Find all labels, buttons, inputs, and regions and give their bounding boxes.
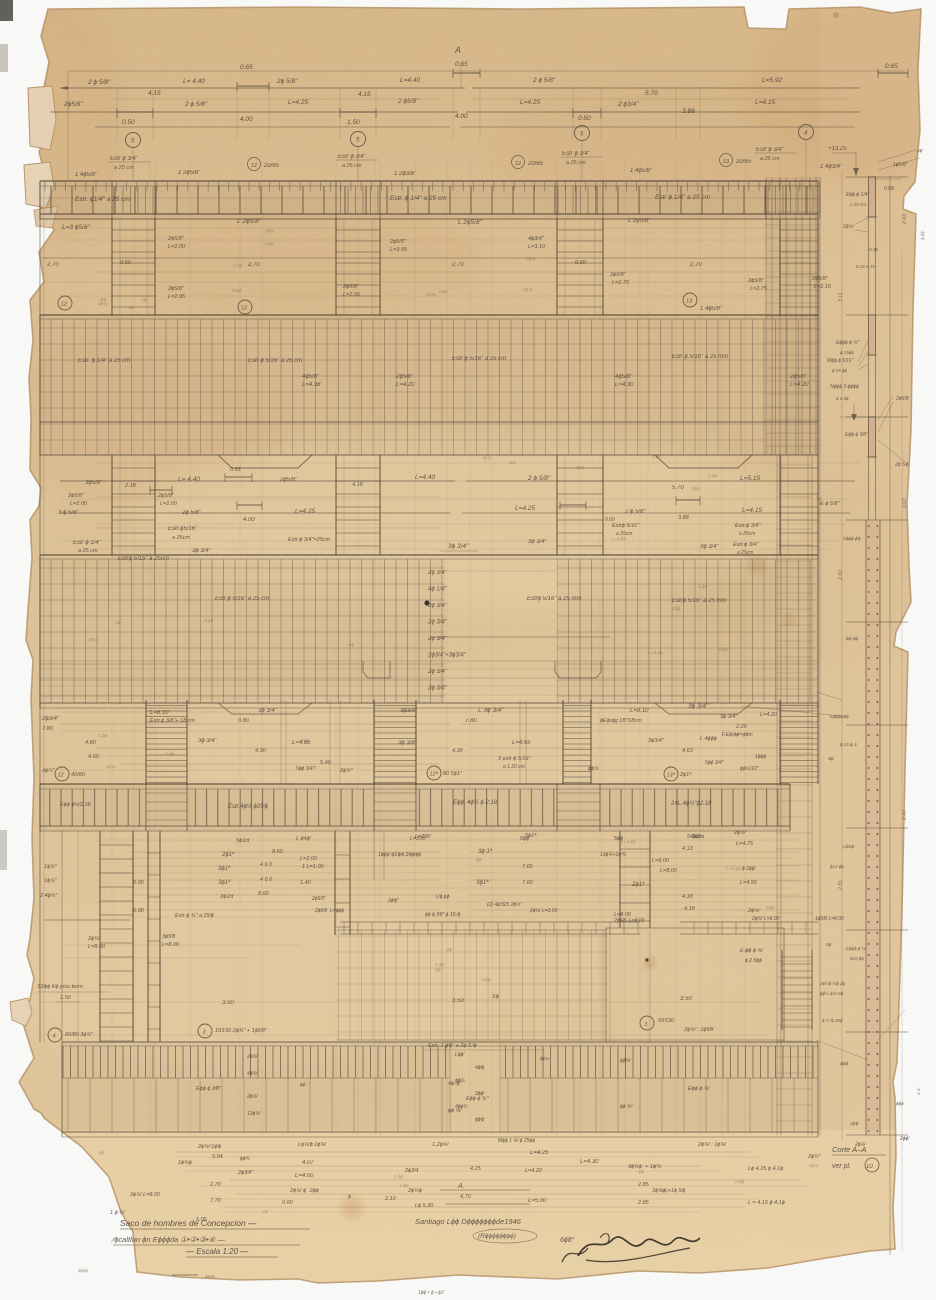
svg-text:Eϕϕ ϕ 3⁄8": Eϕϕ ϕ 3⁄8" — [845, 432, 868, 438]
svg-text:L=8.00: L=8.00 — [652, 858, 670, 864]
svg-text:Lϕ 4.15 ϕ 4,1ϕ: Lϕ 4.15 ϕ 4,1ϕ — [748, 1166, 783, 1172]
svg-text:2.80: 2.80 — [838, 570, 844, 581]
svg-text:2 ϕ 5/8": 2 ϕ 5/8" — [184, 101, 208, 108]
svg-text:4.13: 4.13 — [682, 846, 694, 852]
svg-text:a 25 cm: a 25 cm — [566, 160, 586, 166]
svg-text:L=4.25: L=4.25 — [515, 505, 535, 512]
svg-text:L=2.95: L=2.95 — [343, 292, 361, 298]
svg-text:1 4ϕ3/4": 1 4ϕ3/4" — [820, 164, 843, 170]
svg-text:a 25 cm: a 25 cm — [760, 156, 780, 162]
svg-text:a 1.20 cm: a 1.20 cm — [503, 764, 525, 770]
svg-text:3ϕ1ª: 3ϕ1ª — [476, 879, 489, 886]
svg-text:4.63: 4.63 — [682, 748, 694, 754]
svg-text:1ϕϕϕ: 1ϕϕϕ — [755, 754, 766, 760]
svg-text:L=4.25: L=4.25 — [520, 99, 540, 106]
svg-text:Estr.ϕ 3/8"+ 18 cm: Estr.ϕ 3/8"+ 18 cm — [150, 718, 195, 724]
svg-text:3ϕ1ª: 3ϕ1ª — [218, 879, 231, 886]
svg-text:2ϕ1ª: 2ϕ1ª — [679, 771, 692, 778]
svg-text:Saco de hombres de Concepcion: Saco de hombres de Concepcion — — [120, 1218, 257, 1228]
svg-text:1 L=1.00: 1 L=1.00 — [302, 864, 325, 870]
svg-text:2ϕ⁄ϕ: 2ϕ⁄ϕ — [849, 1121, 859, 1126]
svg-text:2ϕ¾": 2ϕ¾" — [807, 1154, 822, 1160]
svg-text:Estr.ϕ 3/4": Estr.ϕ 3/4" — [733, 542, 759, 548]
svg-text:2,70: 2,70 — [689, 262, 702, 268]
svg-text:80 5ϕ1°: 80 5ϕ1° — [443, 771, 463, 777]
svg-text:3.88: 3.88 — [682, 108, 695, 115]
svg-text:2ϕ¾⁄ L=8.00: 2ϕ¾⁄ L=8.00 — [129, 1192, 161, 1198]
svg-text:3ϕ¾: 3ϕ¾ — [523, 287, 532, 293]
svg-text:3ϕ1ª: 3ϕ1ª — [218, 865, 231, 872]
svg-text:2ϕ5/8": 2ϕ5/8" — [747, 278, 765, 284]
svg-text:4.ϕ0: 4.ϕ0 — [652, 454, 662, 460]
svg-text:2ϕ½ϕ ½ϕ 2ϕ: 2ϕ½ϕ ½ϕ 2ϕ — [819, 980, 846, 986]
svg-text:L=5.92: L=5.92 — [762, 77, 782, 84]
svg-text:2ϕ 5⁄ϕ: 2ϕ 5⁄ϕ — [894, 462, 909, 468]
svg-text:1 4ϕ5/8": 1 4ϕ5/8" — [630, 168, 653, 174]
svg-text:12: 12 — [61, 302, 67, 308]
svg-text:2.10: 2.10 — [384, 1196, 397, 1202]
svg-text:12ª: 12ª — [430, 771, 439, 778]
svg-text:L=4.ϕϕ: L=4.ϕϕ — [611, 536, 626, 542]
svg-text:2ϕ¾⁄ ϕ´ 2ϕϕ: 2ϕ¾⁄ ϕ´ 2ϕϕ — [289, 1188, 319, 1194]
svg-text:Eϕϕϕ ϕ⁄ϕ: Eϕϕϕ ϕ⁄ϕ — [843, 536, 861, 541]
svg-text:8.60: 8.60 — [258, 891, 270, 897]
svg-text:3.88: 3.88 — [678, 515, 690, 521]
svg-text:0.50: 0.50 — [122, 119, 135, 126]
svg-text:2ϕ5/8": 2ϕ5/8" — [67, 493, 85, 499]
svg-text:4.00: 4.00 — [240, 116, 253, 123]
svg-text:2,70: 2,70 — [247, 262, 260, 268]
svg-text:L⁄ϕ.ϕϕ: L⁄ϕ.ϕϕ — [436, 894, 450, 900]
svg-text:5´: 5´ — [356, 138, 361, 144]
svg-text:4: 4 — [53, 1034, 56, 1040]
svg-text:4ϕ⁄ϕ: 4ϕ⁄ϕ — [475, 1065, 484, 1071]
svg-text:ϕϕϕ: ϕϕϕ — [896, 1101, 904, 1106]
svg-text:2ϕ5/8": 2ϕ5/8" — [342, 284, 360, 290]
svg-text:4.ϕ0: 4.ϕ0 — [204, 618, 214, 624]
svg-text:10: 10 — [866, 1164, 873, 1170]
svg-text:40/80: 40/80 — [71, 772, 86, 778]
svg-text:ϕ19 ϕϕ: ϕ19 ϕϕ — [850, 956, 864, 961]
svg-text:L= 4.40: L= 4.40 — [178, 476, 200, 483]
svg-text:0.ϕϕ: 0.ϕϕ — [98, 733, 108, 739]
svg-text:1 2ϕ5/8": 1 2ϕ5/8" — [178, 170, 201, 176]
svg-text:ϕϕ½ ϕ½⁄ 2ϕ: ϕϕ½ ϕ½⁄ 2ϕ — [820, 990, 844, 996]
svg-text:Eϕϕ: Eϕϕ — [766, 905, 775, 911]
svg-text:F.Eϕrϕϕ⁄=ϕϕm: F.Eϕrϕϕ⁄=ϕϕm — [722, 732, 753, 738]
svg-text:2ϕ½⁄: 2ϕ½⁄ — [842, 223, 855, 230]
svg-text:Lϕϕ⁄: Lϕϕ⁄ — [455, 1052, 465, 1058]
svg-text:2ϕ⁄: 2ϕ⁄ — [261, 1209, 269, 1215]
svg-text:Lϕ 5.30: Lϕ 5.30 — [415, 1203, 434, 1209]
svg-text:ϕ 25ϕϕ: ϕ 25ϕϕ — [840, 350, 854, 355]
svg-text:⁄ϕcaltlon ϕn Eϕϕϕda ①•②•③•④ —: ⁄ϕcaltlon ϕn Eϕϕϕda ①•②•③•④ — — [110, 1235, 225, 1244]
svg-text:4.ϕ0: 4.ϕ0 — [399, 1183, 409, 1189]
svg-text:3ϕ5⁄8´: 3ϕ5⁄8´ — [162, 934, 177, 940]
svg-text:4.ϕ0: 4.ϕ0 — [264, 241, 274, 247]
svg-text:0.88: 0.88 — [884, 186, 894, 192]
svg-text:20/65: 20/65 — [263, 163, 280, 169]
svg-text:2 ϕ 5/8": 2 ϕ 5/8" — [87, 79, 111, 86]
svg-text:5´: 5´ — [580, 132, 585, 138]
svg-text:4.80: 4.80 — [85, 740, 97, 746]
svg-text:2ϕ3⁄4": 2ϕ3⁄4" — [237, 1170, 254, 1176]
svg-text:3ϕ¾: 3ϕ¾ — [809, 1163, 818, 1169]
svg-text:0.ϕϕ: 0.ϕϕ — [708, 473, 718, 479]
svg-text:13ª: 13ª — [667, 772, 676, 779]
svg-text:ϕϕ⁄ ϕϕ: ϕϕ⁄ ϕϕ — [846, 636, 859, 641]
svg-text:Eϕϕ: Eϕϕ — [301, 738, 310, 744]
svg-text:ϕ 2.5ϕϕ: ϕ 2.5ϕϕ — [745, 958, 762, 964]
svg-text:3.11: 3.11 — [838, 292, 844, 302]
svg-text:Eϕϕ: Eϕϕ — [672, 606, 681, 612]
svg-text:5ϕ1⁄d: 5ϕ1⁄d — [236, 838, 250, 844]
svg-text:4.15: 4.15 — [358, 91, 371, 98]
svg-text:2ϕ5/8": 2ϕ5/8" — [279, 477, 298, 483]
svg-text:0.ϕϕ: 0.ϕϕ — [233, 263, 243, 269]
svg-text:3ϕ¾: 3ϕ¾ — [98, 301, 107, 307]
svg-text:5ϕϕ 3/4": 5ϕϕ 3/4" — [705, 760, 724, 766]
svg-text:4.ϕ0: 4.ϕ0 — [698, 584, 708, 590]
svg-text:L=4.ϕϕ: L=4.ϕϕ — [726, 866, 741, 872]
svg-text:L=4.ϕϕ: L=4.ϕϕ — [621, 839, 636, 845]
svg-text:L=4.40: L=4.40 — [400, 77, 420, 84]
svg-text:2ϕ¾⁄ : 1ϕ¾⁄: 2ϕ¾⁄ : 1ϕ¾⁄ — [697, 1142, 727, 1148]
svg-text:2ϕ5/8": 2ϕ5/8" — [167, 286, 185, 292]
svg-text:a 25 cm: a 25 cm — [850, 202, 866, 207]
svg-text:1.40: 1.40 — [300, 880, 312, 886]
svg-text:ϕ: ϕ — [348, 1194, 351, 1200]
svg-text:Eϕϕ ϕ 1/4": Eϕϕ ϕ 1/4" — [846, 192, 869, 198]
svg-text:3ϕ 1ª: 3ϕ 1ª — [478, 848, 493, 855]
svg-text:Eϕϕ: Eϕϕ — [691, 486, 700, 492]
svg-text:2ϕ½ϕ: 2ϕ½ϕ — [407, 1187, 422, 1194]
svg-text:0.50: 0.50 — [578, 115, 591, 122]
svg-text:ϕϕ½⁄1⁄2": ϕϕ½⁄1⁄2" — [740, 765, 759, 772]
svg-text:6ϕ8°: 6ϕ8° — [560, 1236, 575, 1244]
svg-text:0.ϕϕ: 0.ϕϕ — [232, 288, 242, 294]
svg-text:6.00: 6.00 — [133, 880, 145, 886]
svg-text:12: 12 — [251, 163, 257, 169]
svg-text:10⁄150 2ϕ¾" + 1ϕ5⁄8": 10⁄150 2ϕ¾" + 1ϕ5⁄8" — [215, 1028, 268, 1034]
svg-text:3ϕ 3/4": 3ϕ 3/4" — [258, 708, 278, 714]
svg-text:2ϕϕ⁄: 2ϕϕ⁄ — [899, 1136, 910, 1142]
svg-text:⁄ϕϕ: ⁄ϕϕ — [636, 1169, 644, 1175]
svg-text:0.65: 0.65 — [240, 64, 253, 71]
svg-text:Nϕϕϕ 3 ϕϕϕϕ: Nϕϕϕ 3 ϕϕϕϕ — [830, 384, 859, 390]
svg-text:L=4.25: L=4.25 — [295, 508, 315, 515]
svg-text:L=2.00: L=2.00 — [300, 856, 318, 862]
svg-text:3ϕ¾: 3ϕ¾ — [575, 465, 584, 471]
svg-text:L=4.55: L=4.55 — [740, 880, 758, 886]
svg-text:⁄ϕϕ: ⁄ϕϕ — [346, 642, 354, 648]
svg-text:5.70: 5.70 — [645, 90, 658, 97]
svg-text:2ϕ¾⁄: 2ϕ¾⁄ — [87, 936, 101, 942]
svg-text:7.60: 7.60 — [522, 880, 534, 886]
svg-text:2ϕ⁄: 2ϕ⁄ — [815, 496, 823, 502]
svg-text:L ϕ4ϕ⁄: L ϕ4ϕ⁄ — [296, 836, 312, 842]
svg-text:L=4.40: L=4.40 — [415, 474, 435, 481]
svg-text:4.00: 4.00 — [243, 517, 255, 523]
svg-text:Estr ϕ ¾" a 25⁄ϕ: Estr ϕ ¾" a 25⁄ϕ — [175, 913, 214, 919]
svg-text:1ϕ¾": 1ϕ¾" — [44, 864, 58, 870]
svg-text:L=4.20: L=4.20 — [760, 712, 778, 718]
svg-text:Eϕϕϕϕ⁄ϕϕ: Eϕϕϕϕ⁄ϕϕ — [830, 714, 849, 719]
svg-text:Estr ϕ 3/4": Estr ϕ 3/4" — [756, 147, 785, 153]
svg-text:1⁄ϕ: 1⁄ϕ — [492, 994, 499, 1000]
svg-text:2,70: 2,70 — [46, 262, 59, 268]
svg-text:2.85: 2.85 — [637, 1200, 650, 1206]
svg-text:ϕ13 ϕϕ: ϕ13 ϕϕ — [830, 864, 844, 869]
svg-text:0.97: 0.97 — [902, 498, 908, 508]
svg-text:2ϕ⁄: 2ϕ⁄ — [140, 297, 148, 303]
svg-text:2.1⁄: 2.1⁄ — [916, 1087, 921, 1096]
svg-text:Estr ϕ 3/4": Estr ϕ 3/4" — [338, 154, 367, 160]
svg-text:3ϕ¾: 3ϕ¾ — [106, 764, 115, 770]
svg-text:Estr ϕ 3/4": Estr ϕ 3/4" — [562, 151, 591, 157]
svg-text:2 ϕ5/8": 2 ϕ5/8" — [397, 98, 419, 105]
svg-text:(Rϕϕϕϕϕϕϕϕ): (Rϕϕϕϕϕϕϕϕ) — [478, 1233, 516, 1240]
svg-text:L 2ϕ5/8": L 2ϕ5/8" — [458, 219, 483, 226]
svg-text:Mϕϕ ϕ 5⁄16": Mϕϕ ϕ 5⁄16" — [827, 358, 853, 364]
svg-text:2ϕ¾": 2ϕ¾" — [339, 768, 354, 774]
svg-text:5.70: 5.70 — [672, 485, 684, 491]
svg-text:L=4.00: L=4.00 — [295, 1173, 314, 1179]
svg-text:A: A — [454, 45, 461, 55]
svg-text:a 25 cm: a 25 cm — [78, 548, 98, 554]
svg-text:4.00: 4.00 — [455, 113, 468, 120]
svg-text:1ϕϕ • ϕ • ϕ2: 1ϕϕ • ϕ • ϕ2 — [418, 1290, 444, 1296]
svg-text:0.18 0.15: 0.18 0.15 — [856, 264, 875, 269]
svg-text:2ϕ¾⁄:1ϕ⁄ϕ: 2ϕ¾⁄:1ϕ⁄ϕ — [197, 1144, 221, 1150]
svg-text:a 25cm: a 25cm — [172, 535, 190, 541]
svg-text:ϕ.15 ϕ.1⁄: ϕ.15 ϕ.1⁄ — [840, 742, 858, 747]
svg-text:2ϕ½⁄ L=3.00: 2ϕ½⁄ L=3.00 — [529, 907, 558, 914]
svg-text:5.04: 5.04 — [212, 1154, 223, 1160]
svg-text:0.60: 0.60 — [575, 260, 587, 266]
svg-text:3ϕ 3/4": 3ϕ 3/4" — [198, 738, 218, 744]
svg-text:0.ϕϕ: 0.ϕϕ — [394, 1174, 404, 1180]
svg-text:7.65: 7.65 — [522, 864, 534, 870]
svg-text:5ϕϕ: 5ϕϕ — [520, 836, 529, 842]
svg-text:Corte A–A: Corte A–A — [832, 1145, 866, 1154]
svg-text:0.ϕϕ: 0.ϕϕ — [735, 1179, 745, 1185]
svg-text:⁄ϕϕ: ⁄ϕϕ — [507, 460, 515, 466]
svg-text:5ϕϕ 3/4"⁄: 5ϕϕ 3/4"⁄ — [296, 766, 316, 772]
svg-text:L=4.ϕϕ: L=4.ϕϕ — [648, 650, 663, 656]
svg-text:L=4.20: L=4.20 — [525, 1168, 543, 1174]
svg-text:2ϕ5/8": 2ϕ5/8" — [63, 101, 83, 108]
svg-text:Estr ϕ 3/4": Estr ϕ 3/4" — [110, 156, 139, 162]
svg-text:3 ϕ 5/8": 3 ϕ 5/8" — [58, 510, 79, 516]
svg-text:ϕ 25 ϕϕ: ϕ 25 ϕϕ — [832, 368, 848, 373]
svg-text:4.30: 4.30 — [452, 748, 464, 754]
svg-text:13ϕ¾+1ϕ⁄¾: 13ϕ¾+1ϕ⁄¾ — [600, 852, 626, 858]
svg-text:ϕϕ¾: ϕϕ¾ — [240, 1156, 250, 1162]
svg-text:1 4ϕ5/8": 1 4ϕ5/8" — [700, 306, 723, 312]
svg-text:Eϕϕ: Eϕϕ — [439, 289, 448, 295]
svg-text:Eϕϕ: Eϕϕ — [719, 647, 728, 653]
svg-text:4.30: 4.30 — [255, 748, 267, 754]
svg-text:3ϕ 3/4": 3ϕ 3/4" — [688, 703, 709, 710]
svg-text:1,2ϕ¾⁄: 1,2ϕ¾⁄ — [432, 1142, 449, 1148]
svg-text:ϕ ½"ϕ 25ϕ: ϕ ½"ϕ 25ϕ — [822, 1017, 843, 1023]
svg-text:2ϕ5/8": 2ϕ5/8" — [167, 236, 185, 242]
svg-text:A.: A. — [457, 1183, 465, 1190]
svg-text:0.50: 0.50 — [120, 260, 132, 266]
svg-text:L=2.75: L=2.75 — [750, 286, 768, 292]
svg-text:1 4ϕ5/8": 1 4ϕ5/8" — [75, 172, 98, 178]
svg-text:Lϕ¾⁄ϕ:1ϕ¾⁄: Lϕ¾⁄ϕ:1ϕ¾⁄ — [298, 1142, 327, 1148]
svg-text:Eϕϕϕ ϕ ¾": Eϕϕϕ ϕ ¾" — [836, 340, 859, 346]
svg-text:L = 4.15 ϕ 4,1ϕ: L = 4.15 ϕ 4,1ϕ — [748, 1200, 785, 1206]
svg-text:L=4.25: L=4.25 — [288, 99, 308, 106]
svg-text:ϕ.ϕϕ: ϕ.ϕϕ — [920, 231, 925, 240]
svg-text:1ϕ5⁄8 L=8.00: 1ϕ5⁄8 L=8.00 — [815, 916, 844, 922]
svg-text:0.4ϕ: 0.4ϕ — [869, 247, 878, 252]
svg-text:2ϕ3⁄4´: 2ϕ3⁄4´ — [404, 1168, 420, 1174]
svg-text:3ϕ¾: 3ϕ¾ — [265, 228, 274, 234]
svg-text:4.25: 4.25 — [470, 1166, 482, 1172]
svg-text:0.60: 0.60 — [282, 1200, 294, 1206]
svg-text:7.70: 7.70 — [210, 1198, 222, 1204]
svg-text:3ϕ¾ϕ´ + 1ϕ⁄¾: 3ϕ¾ϕ´ + 1ϕ⁄¾ — [628, 1164, 662, 1170]
svg-text:L 3ϕ 3/4": L 3ϕ 3/4" — [478, 707, 504, 714]
svg-text:4.18: 4.18 — [684, 906, 696, 912]
svg-text:ϕ 2ϕϕ⁄: ϕ 2ϕϕ⁄ — [742, 866, 757, 872]
svg-text:4.07: 4.07 — [302, 1160, 314, 1166]
svg-text:L=2.75: L=2.75 — [612, 280, 630, 286]
svg-text:2.20: 2.20 — [735, 724, 748, 730]
svg-text:2 ϕ 5/8": 2 ϕ 5/8" — [532, 77, 556, 84]
svg-text:a 25 cm: a 25 cm — [342, 163, 362, 169]
svg-text:ϕϕϕϕ: ϕϕϕϕ — [205, 1274, 216, 1279]
svg-text:L=4.30: L=4.30 — [580, 1159, 599, 1165]
svg-text:2.18: 2.18 — [124, 483, 137, 489]
svg-text:L=4.65: L=4.65 — [512, 740, 531, 746]
svg-text:2,70: 2,70 — [451, 262, 464, 268]
svg-text:2.43: 2.43 — [902, 810, 908, 821]
svg-text:L=3.10: L=3.10 — [528, 244, 546, 250]
svg-text:1ϕ¾ϕ´: 1ϕ¾ϕ´ — [178, 1160, 194, 1166]
svg-text:2ϕ 5/8": 2ϕ 5/8" — [276, 78, 298, 85]
svg-text:L=2.95: L=2.95 — [168, 294, 186, 300]
svg-text:L=4.25: L=4.25 — [530, 1150, 549, 1156]
svg-text:2ϕϕa: 2ϕϕa — [691, 834, 704, 840]
svg-text:ϕϕ¾: ϕϕ¾ — [588, 766, 599, 772]
svg-text:a 25 cm: a 25 cm — [114, 165, 134, 171]
svg-text:2ϕ1ª: 2ϕ1ª — [221, 851, 235, 858]
svg-text:ver pl.: ver pl. — [832, 1163, 851, 1170]
svg-text:Lϕ4⁄ϕ⁄: Lϕ4⁄ϕ⁄ — [843, 844, 856, 849]
svg-text:2ϕ 5/8": 2ϕ 5/8" — [181, 510, 202, 516]
svg-text:3ϕ¾: 3ϕ¾ — [88, 637, 97, 643]
svg-text:ϕ 2.5ϕ: ϕ 2.5ϕ — [836, 396, 849, 401]
svg-text:2ϕ¾⁄: 2ϕ¾⁄ — [747, 908, 761, 914]
svg-text:3ϕ¾: 3ϕ¾ — [482, 455, 491, 461]
svg-text:13: 13 — [686, 299, 693, 305]
svg-text:Estr ϕ 3/4"=25cm: Estr ϕ 3/4"=25cm — [288, 537, 331, 543]
svg-text:2ϕ1⁄d: 2ϕ1⁄d — [219, 894, 234, 900]
svg-text:3ϕ 3/8": 3ϕ 3/8" — [398, 740, 418, 746]
svg-text:2 4ϕ¾": 2 4ϕ¾" — [39, 893, 58, 899]
svg-text:3.50: 3.50 — [452, 998, 464, 1004]
svg-text:Eϕϕ: Eϕϕ — [660, 1188, 669, 1194]
svg-text:L=200: L=200 — [410, 836, 426, 842]
svg-text:2ϕ⁄: 2ϕ⁄ — [445, 947, 453, 953]
svg-text:2 ϕ3/4": 2 ϕ3/4" — [617, 101, 639, 108]
svg-text:ϕEϕrϕg 18"⁄18cm: ϕEϕrϕg 18"⁄18cm — [600, 718, 642, 724]
svg-text:12: 12 — [58, 773, 64, 779]
svg-text:2 ϕ 5/8": 2 ϕ 5/8" — [624, 509, 646, 515]
svg-text:0.80: 0.80 — [238, 718, 250, 724]
svg-text:8.60: 8.60 — [272, 849, 284, 855]
svg-text:L 2ϕ5/8": L 2ϕ5/8" — [237, 218, 262, 225]
svg-text:2.85: 2.85 — [838, 880, 844, 891]
svg-text:L 4ϕϕϕ: L 4ϕϕϕ — [700, 736, 717, 742]
svg-text:ϕϕ⁄ϕ: ϕϕ⁄ϕ — [840, 1061, 849, 1066]
svg-text:4.60: 4.60 — [88, 754, 100, 760]
svg-text:Eϕϕ: Eϕϕ — [482, 977, 491, 983]
svg-text:6.00: 6.00 — [133, 908, 145, 914]
svg-text:4.18: 4.18 — [682, 894, 694, 900]
svg-text:Santiago Lϕϕ Dϕϕϕϕϕϕϕde1946: Santiago Lϕϕ Dϕϕϕϕϕϕϕde1946 — [415, 1217, 522, 1226]
svg-text:L=3.95: L=3.95 — [390, 247, 408, 253]
svg-text:2ϕ⁄ϕ": 2ϕ⁄ϕ" — [387, 898, 399, 904]
svg-text:4,70: 4,70 — [460, 1194, 472, 1200]
svg-text:4.15: 4.15 — [148, 90, 161, 97]
svg-text:1ϕ¾": 1ϕ¾" — [44, 878, 58, 884]
svg-text:1.50: 1.50 — [347, 119, 360, 126]
svg-text:L=2.00: L=2.00 — [168, 244, 186, 250]
svg-text:L=4.15: L=4.15 — [755, 99, 775, 106]
svg-text:3ϕ¾ϕ´+1ϕ 5⁄ϕ: 3ϕ¾ϕ´+1ϕ 5⁄ϕ — [652, 1188, 686, 1194]
svg-text:0.ϕϕ: 0.ϕϕ — [165, 751, 175, 757]
svg-text:13: 13 — [723, 159, 730, 165]
svg-text:L=2.00: L=2.00 — [160, 501, 178, 507]
svg-text:2ϕ¾⁄ : 1ϕ5⁄8´: 2ϕ¾⁄ : 1ϕ5⁄8´ — [683, 1027, 715, 1033]
svg-text:4ϕ3/4": 4ϕ3/4" — [528, 236, 545, 242]
svg-text:3 estr ϕ 5/16": 3 estr ϕ 5/16" — [498, 756, 532, 762]
svg-text:2ϕ5⁄8": 2ϕ5⁄8" — [311, 896, 326, 902]
svg-text:ϕϕϕϕ: ϕϕϕϕ — [78, 1268, 89, 1273]
svg-text:5.05: 5.05 — [196, 1217, 208, 1223]
svg-text:7.80: 7.80 — [465, 718, 477, 724]
svg-text:3ϕ¾: 3ϕ¾ — [526, 256, 535, 262]
svg-text:20/65: 20/65 — [527, 161, 544, 167]
svg-text:1 ϕ ½⁄: 1 ϕ ½⁄ — [110, 1209, 126, 1216]
svg-text:2ϕ5/8": 2ϕ5/8" — [157, 493, 175, 499]
svg-text:Eϕϕ ϕ ¾": Eϕϕ ϕ ¾" — [466, 1096, 489, 1102]
svg-text:L=2.00: L=2.00 — [70, 501, 88, 507]
svg-text:2ϕ5/8": 2ϕ5/8" — [609, 272, 627, 278]
svg-text:E.ϕϕ ϕ ¾⁄: E.ϕϕ ϕ ¾⁄ — [740, 948, 764, 954]
svg-text:a 25cm: a 25cm — [739, 531, 755, 537]
svg-text:12: 12 — [241, 306, 247, 312]
svg-text:2ϕ5⁄8⁄: 2ϕ5⁄8⁄ — [895, 396, 910, 402]
svg-text:50⁄150: 50⁄150 — [658, 1018, 675, 1024]
svg-text:— Escala 1:20 —: — Escala 1:20 — — [185, 1247, 249, 1256]
svg-text:20/65: 20/65 — [735, 159, 752, 165]
svg-text:2ϕ⁄: 2ϕ⁄ — [114, 620, 122, 626]
svg-text:2.85: 2.85 — [637, 1182, 650, 1188]
svg-text:3.50: 3.50 — [222, 1000, 234, 1006]
svg-text:Eϕϕϕ ϕ ½⁄: Eϕϕϕ ϕ ½⁄ — [846, 945, 867, 951]
svg-text:3ϕ3/4": 3ϕ3/4" — [648, 738, 665, 744]
svg-text:ϕϕ⁄ϕ: ϕϕ⁄ϕ — [475, 1117, 484, 1123]
svg-text:Estr.ϕ5/16": Estr.ϕ5/16" — [168, 526, 198, 532]
svg-text:3.50: 3.50 — [680, 996, 692, 1002]
